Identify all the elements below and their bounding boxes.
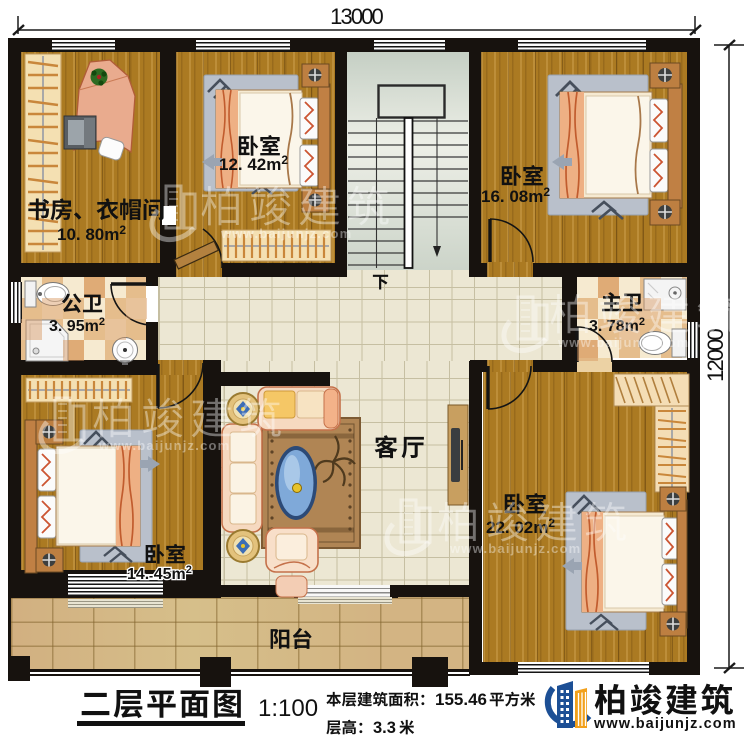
- svg-text:12. 42m2: 12. 42m2: [219, 153, 288, 174]
- svg-text:155.46: 155.46: [435, 690, 487, 709]
- svg-text:13000: 13000: [330, 4, 383, 29]
- svg-text:3.3: 3.3: [373, 719, 396, 737]
- svg-text:10. 80m2: 10. 80m2: [57, 223, 126, 244]
- svg-text:16. 08m2: 16. 08m2: [481, 185, 550, 206]
- svg-text:www.baijunjz.com: www.baijunjz.com: [593, 716, 737, 732]
- svg-text:www.baijunjz.com: www.baijunjz.com: [557, 335, 689, 350]
- svg-text:www.baijunjz.com: www.baijunjz.com: [449, 541, 581, 556]
- svg-text:12000: 12000: [703, 329, 728, 382]
- svg-text:www.baijunjz.com: www.baijunjz.com: [220, 226, 352, 241]
- svg-text:3. 95m2: 3. 95m2: [49, 316, 105, 335]
- svg-text:1:100: 1:100: [258, 695, 318, 722]
- svg-text:www.baijunjz.com: www.baijunjz.com: [98, 438, 230, 453]
- svg-text:14. 45m2: 14. 45m2: [127, 564, 192, 583]
